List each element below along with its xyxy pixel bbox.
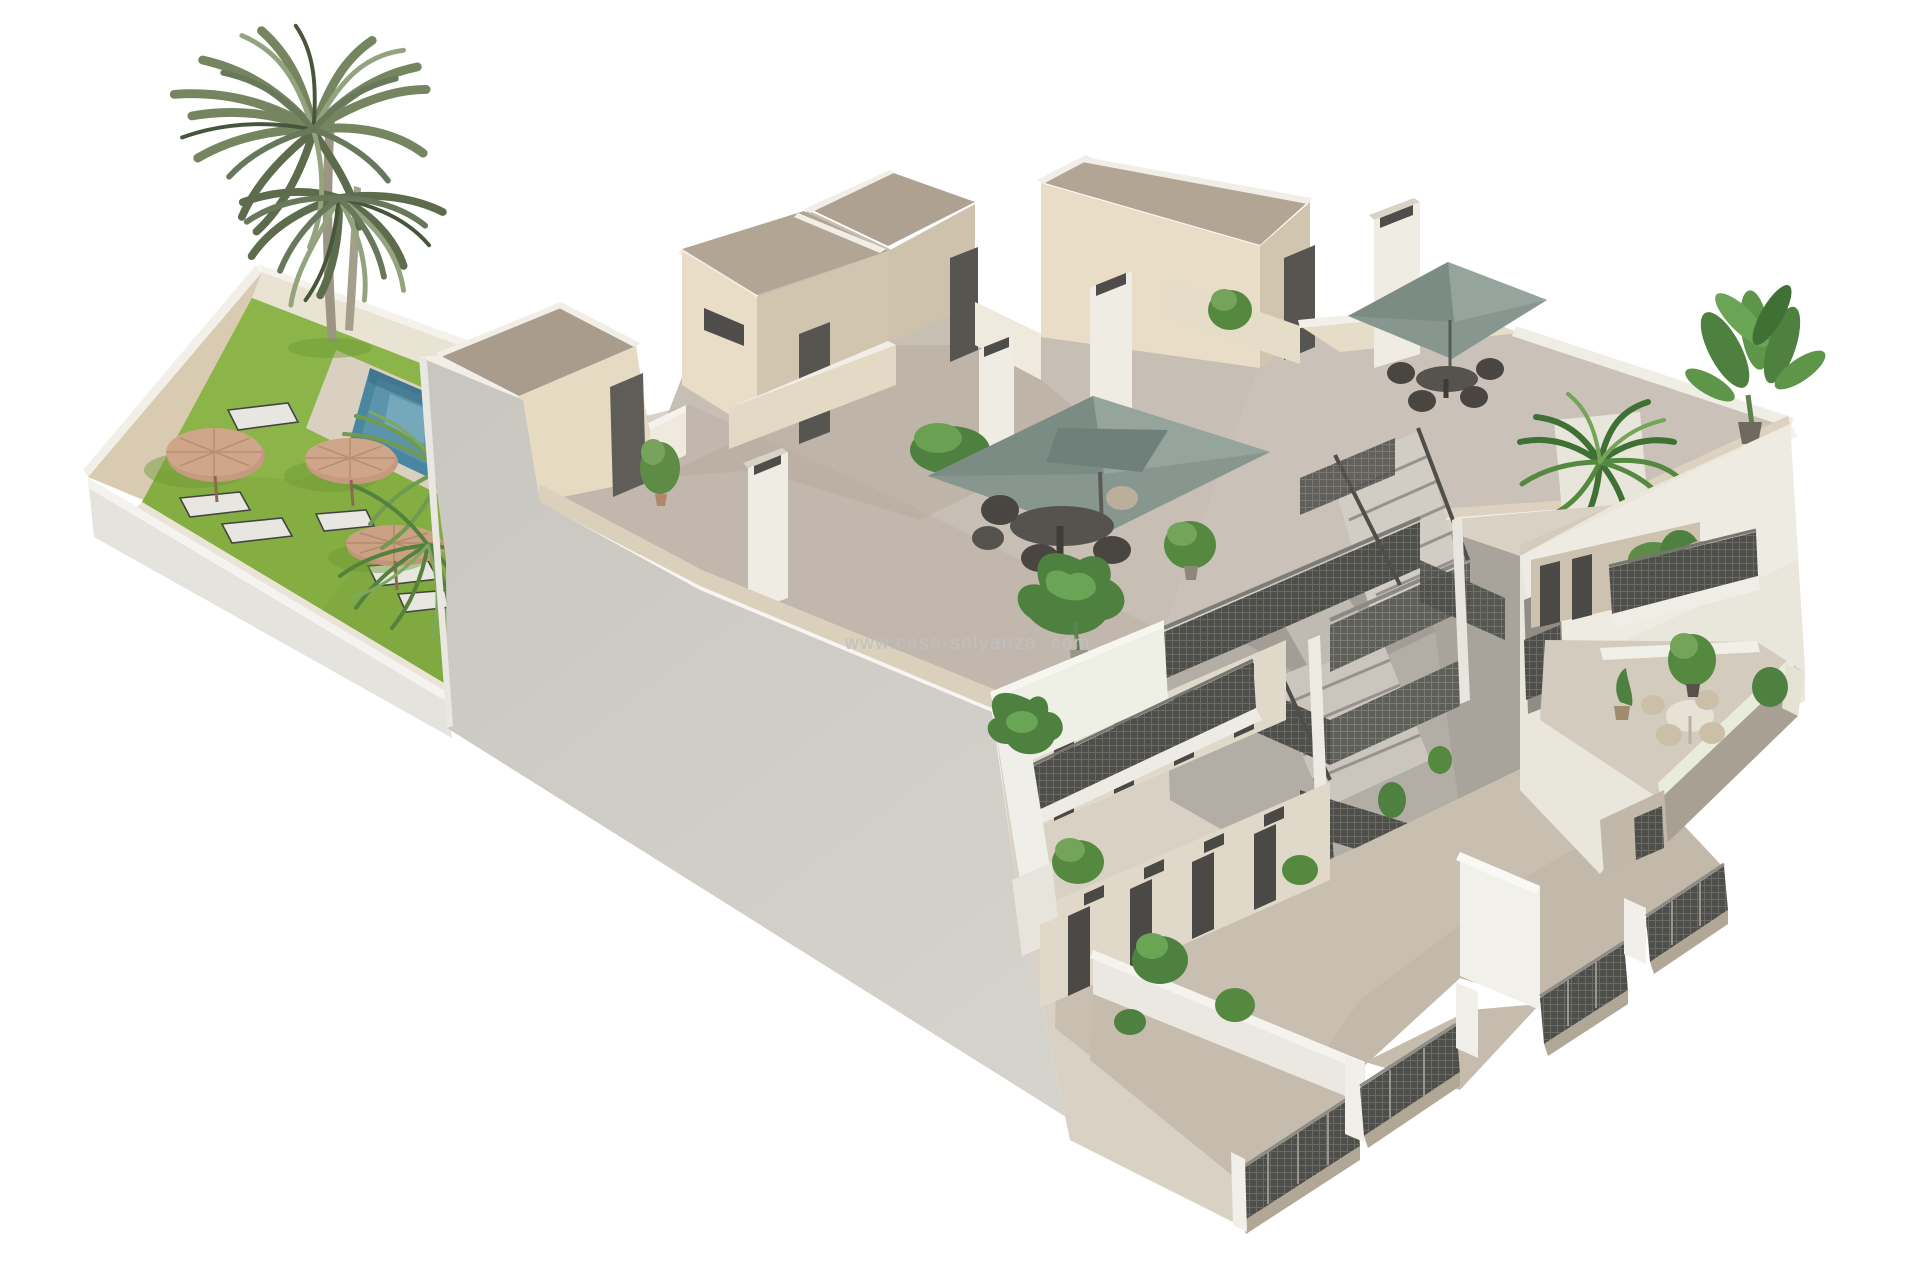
svg-text:www.casa-solyanza .com: www.casa-solyanza .com [844, 633, 1091, 654]
